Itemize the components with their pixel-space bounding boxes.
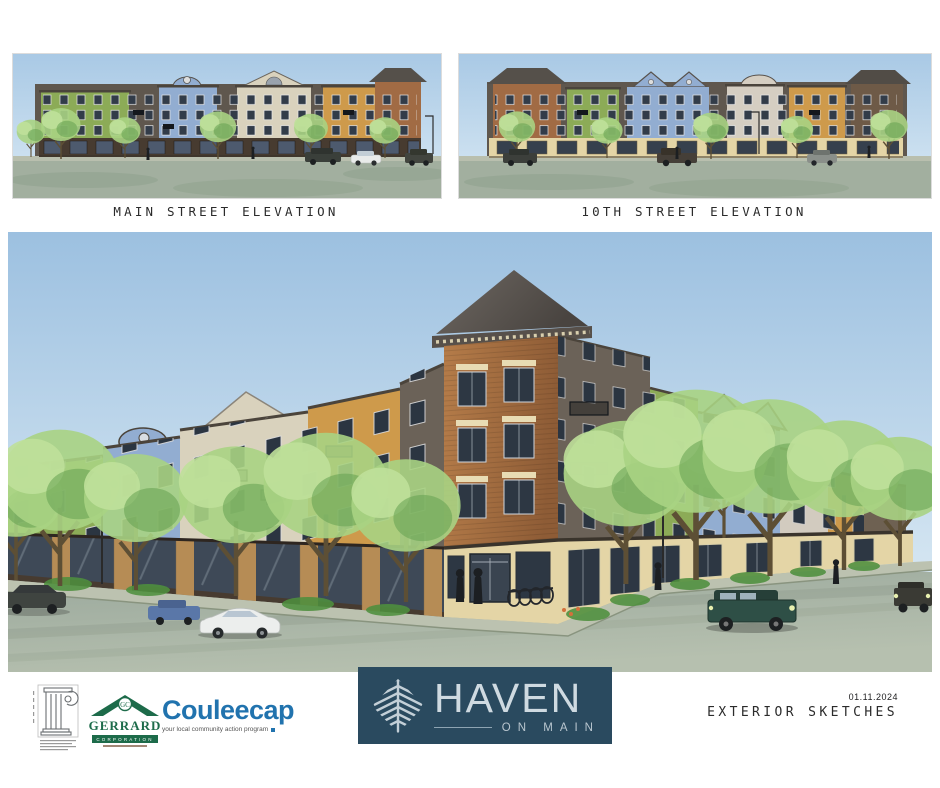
tenth-street-elevation-image [458, 53, 932, 199]
gerrard-roof-icon: GC [91, 695, 159, 717]
sheet-meta: 01.11.2024 EXTERIOR SKETCHES [707, 692, 898, 720]
haven-name: HAVEN [434, 678, 600, 719]
haven-subtitle: ON MAIN [502, 722, 600, 734]
couleecap-name: Couleecap [162, 697, 294, 724]
main-street-elevation-image [12, 53, 442, 199]
sheet-title: EXTERIOR SKETCHES [707, 705, 898, 720]
haven-on-main-logo: HAVEN ON MAIN [358, 667, 612, 744]
architect-column-logo-icon [30, 683, 88, 755]
gerrard-url-line [103, 745, 147, 747]
couleecap-tagline: your local community action program [162, 726, 294, 733]
tenth-street-elevation-caption: 10TH STREET ELEVATION [458, 204, 930, 219]
haven-leaf-icon [370, 677, 426, 735]
sheet-date: 01.11.2024 [707, 692, 898, 702]
gerrard-logo: GC GERRARD CORPORATION [89, 695, 161, 747]
main-street-elevation-caption: MAIN STREET ELEVATION [12, 204, 440, 219]
gerrard-subtitle: CORPORATION [92, 735, 157, 743]
presentation-sheet: MAIN STREET ELEVATION 10TH STREET ELEVAT… [0, 0, 940, 788]
haven-rule [434, 727, 492, 728]
gerrard-name: GERRARD [89, 718, 162, 734]
perspective-rendering-image [8, 232, 932, 672]
couleecap-logo: Couleecap your local community action pr… [162, 697, 294, 733]
couleecap-square-icon [271, 728, 275, 732]
gerrard-monogram: GC [120, 701, 130, 709]
